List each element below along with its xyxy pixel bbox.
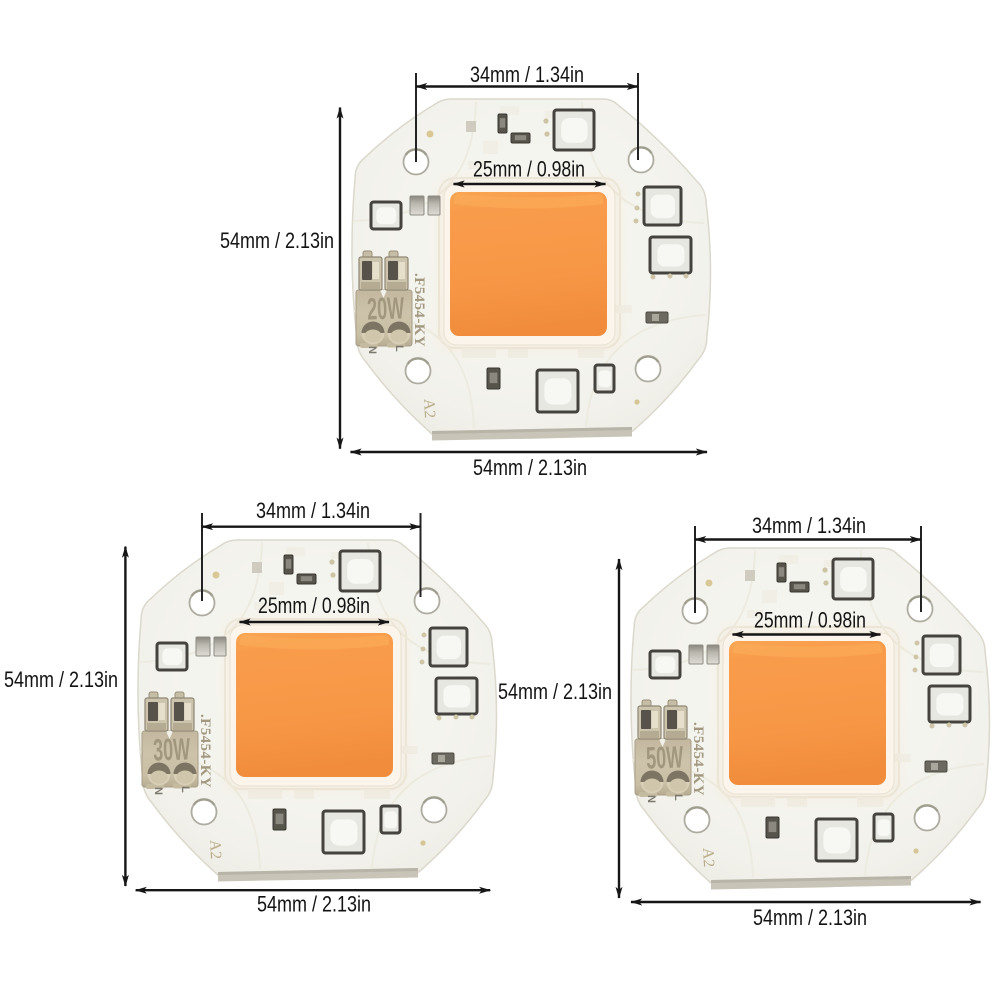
svg-text:54mm / 2.13in: 54mm / 2.13in (498, 679, 612, 704)
svg-text:50W: 50W (646, 739, 685, 775)
svg-text:34mm / 1.34in: 34mm / 1.34in (256, 498, 370, 523)
svg-text:20W: 20W (367, 290, 406, 326)
svg-text:54mm / 2.13in: 54mm / 2.13in (753, 905, 867, 930)
svg-text:25mm / 0.98in: 25mm / 0.98in (258, 593, 370, 618)
svg-text:54mm / 2.13in: 54mm / 2.13in (257, 892, 371, 917)
svg-text:25mm / 0.98in: 25mm / 0.98in (473, 157, 585, 182)
svg-text:34mm / 1.34in: 34mm / 1.34in (752, 513, 866, 538)
svg-text:54mm / 2.13in: 54mm / 2.13in (220, 228, 334, 253)
svg-text:54mm / 2.13in: 54mm / 2.13in (473, 455, 587, 480)
svg-text:54mm / 2.13in: 54mm / 2.13in (4, 667, 118, 692)
svg-text:25mm / 0.98in: 25mm / 0.98in (754, 608, 866, 633)
svg-text:34mm / 1.34in: 34mm / 1.34in (470, 62, 584, 87)
svg-text:30W: 30W (153, 731, 192, 767)
